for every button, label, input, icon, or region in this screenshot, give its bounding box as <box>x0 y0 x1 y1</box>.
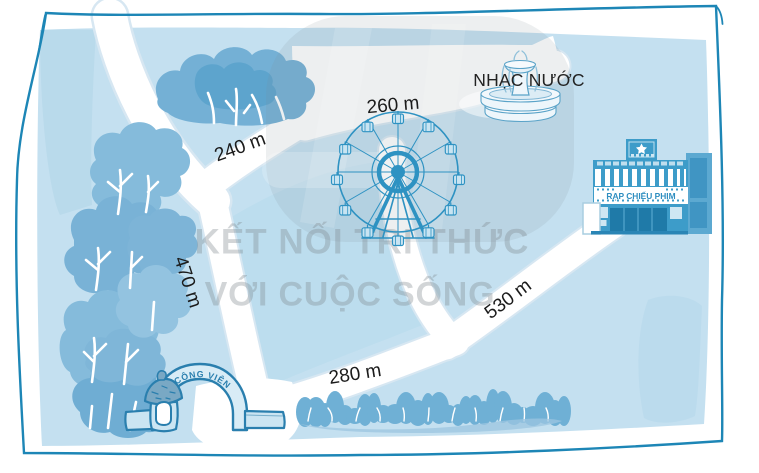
svg-text:280 m: 280 m <box>327 360 382 389</box>
svg-text:530 m: 530 m <box>481 275 536 324</box>
svg-text:RẠP CHIẾU PHIM: RẠP CHIẾU PHIM <box>606 191 675 201</box>
svg-text:470 m: 470 m <box>169 254 205 311</box>
svg-text:240 m: 240 m <box>212 129 269 167</box>
svg-text:NHẠC NƯỚC: NHẠC NƯỚC <box>473 69 584 90</box>
